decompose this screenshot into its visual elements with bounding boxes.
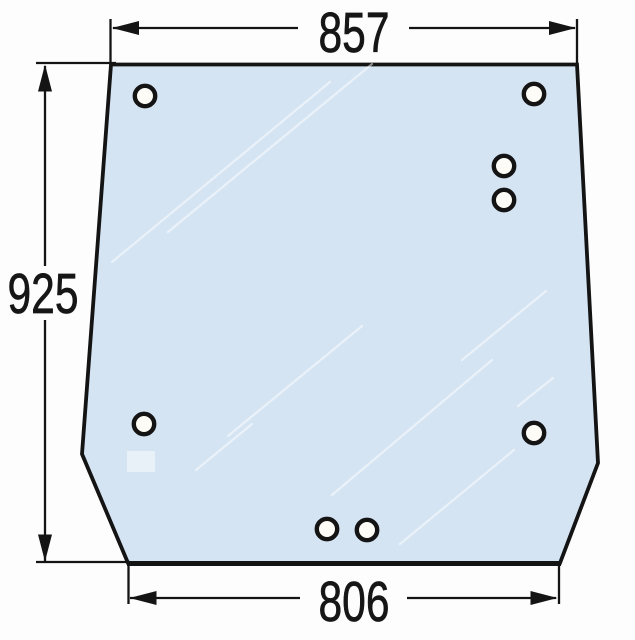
svg-text:925: 925	[8, 262, 79, 326]
svg-text:857: 857	[319, 1, 390, 65]
svg-text:806: 806	[319, 570, 390, 634]
